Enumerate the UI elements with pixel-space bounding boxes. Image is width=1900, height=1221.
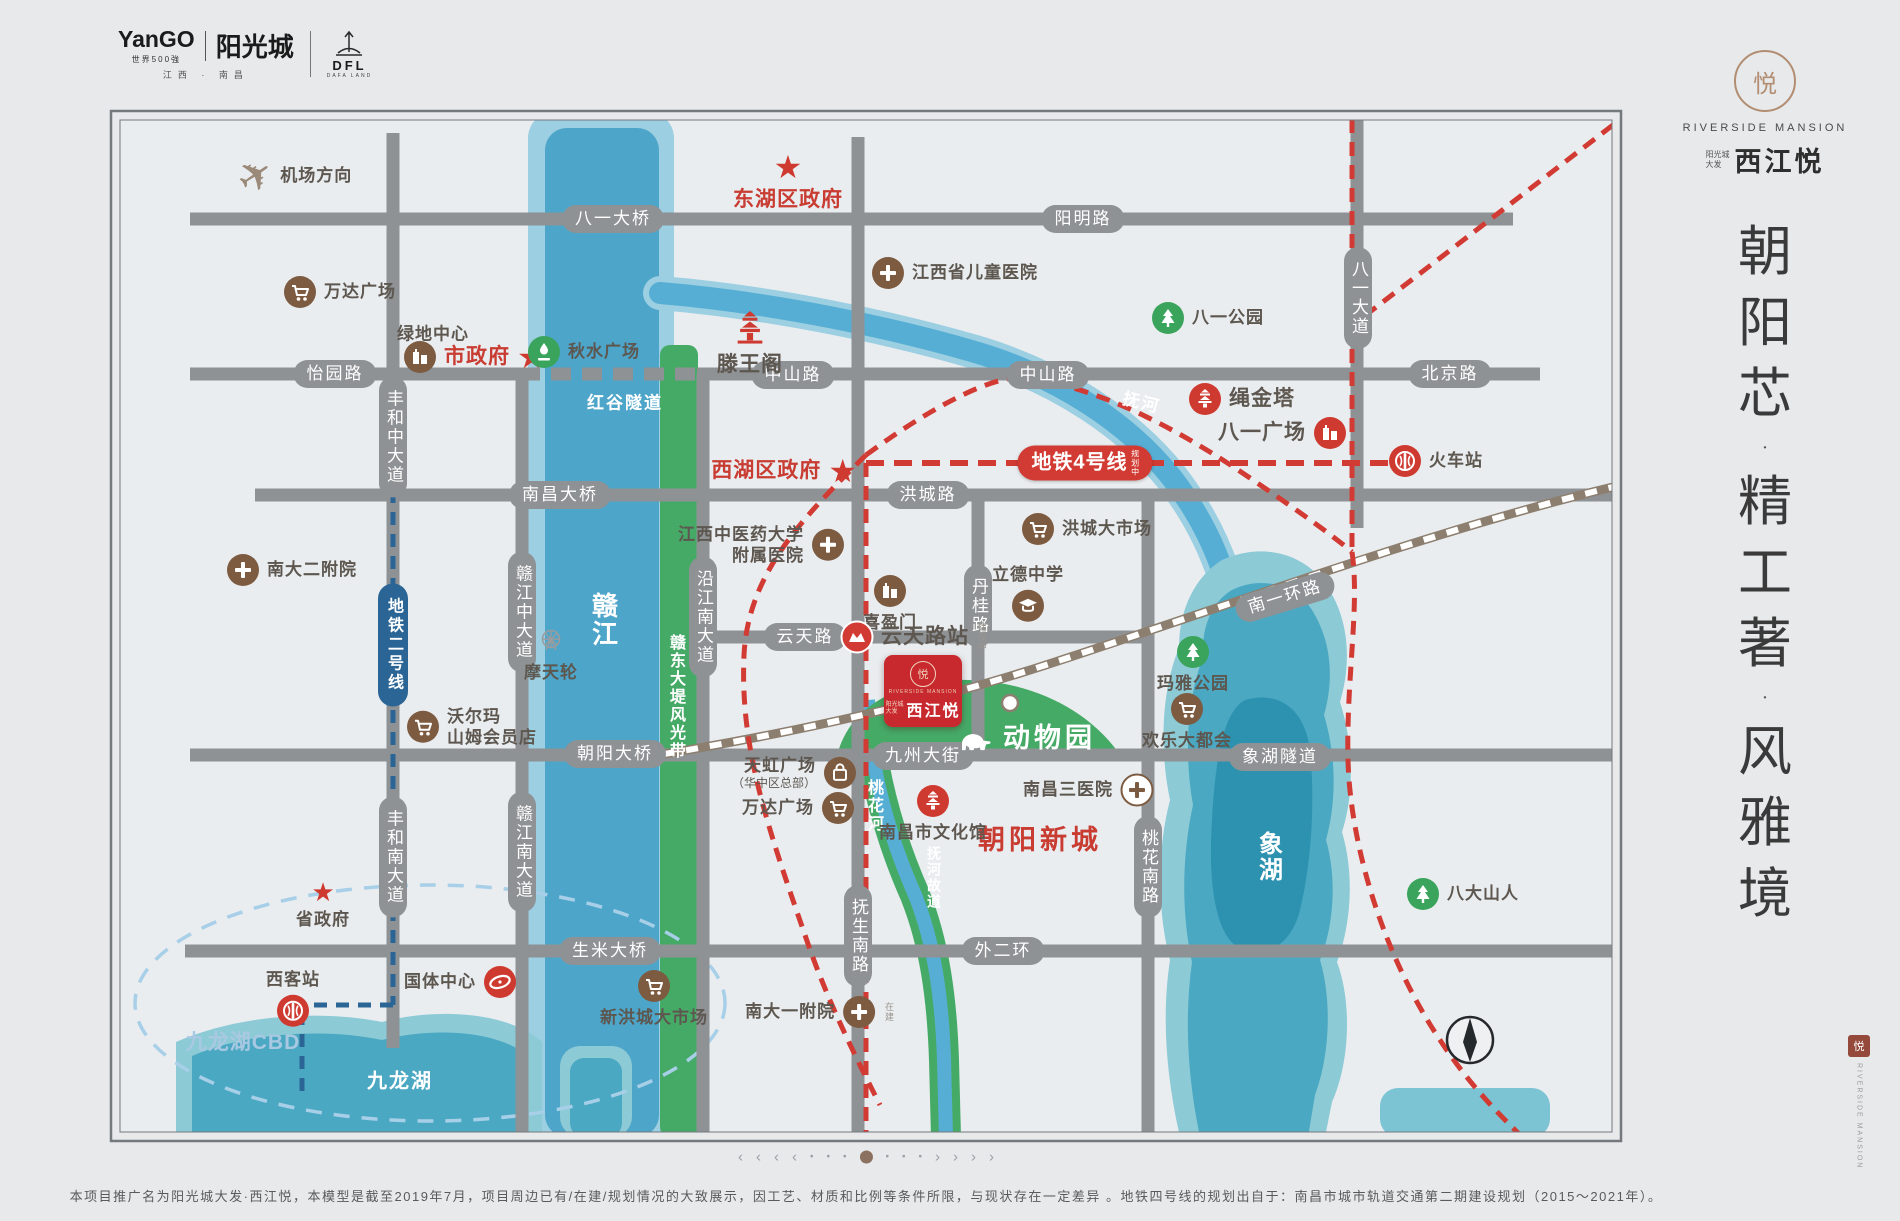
water-label: 红谷隧道 [587,389,663,414]
region-label: 江西 · 南昌 [163,68,249,81]
cart-icon [283,275,317,309]
jiangxi-children-hospital: 江西省儿童医院 [871,256,1038,290]
zhongyiyao-affiliated-hospital-label: 江西中医药大学 [678,524,804,545]
building-icon [403,340,437,374]
rainbow-plaza-label: 天虹广场 [732,755,816,776]
yuntian-road-station: 云天路站建设中 [840,620,986,654]
airport-direction: ✈机场方向 [238,155,352,197]
wanda-plaza-south: 万达广场 [742,791,855,825]
road-label: 丰和南大道 [379,797,407,918]
seal-english: RIVERSIDE MANSION [1856,1063,1863,1169]
cross-icon [842,995,876,1029]
maya-park: 玛雅公园 [1157,635,1229,694]
nanda-1st-hospital-label: 南大一附院 [745,1001,835,1022]
west-railway-station-label: 西客站 [266,969,320,990]
slogan-character: · [1762,438,1769,458]
developer-logos: YanGO 世界500強 阳光城 江西 · 南昌 DFL DAFA LAND [118,26,372,81]
slogan-character: 朝 [1738,225,1792,279]
pagination-dot[interactable]: • [843,1152,847,1162]
walmart-sams-club-sublabel: 山姆会员店 [447,727,537,748]
slogan-character: 阳 [1738,296,1792,350]
slogan-character: 著 [1738,617,1792,671]
qiushui-square-label: 秋水广场 [568,341,640,362]
road-label: 赣江南大道 [508,792,536,913]
brand-english-name: RIVERSIDE MANSION [1683,122,1848,134]
badashanren: 八大山人 [1406,877,1519,911]
road-label: 云天路 [764,623,847,651]
brand-prefix: 阳光城大发 [1706,150,1730,169]
logo-divider [310,31,311,77]
zoo-label: 动物园 [1003,722,1096,756]
road-label: 朝阳大桥 [564,740,666,768]
road-label: 北京路 [1409,360,1492,388]
pagoda-icon [916,784,950,818]
wanda-plaza-south-label: 万达广场 [742,797,814,818]
pagination-current-dot[interactable] [860,1151,873,1164]
star-icon: ★ [828,455,857,487]
grad-icon [1011,589,1045,623]
cart-icon [1021,512,1055,546]
tengwang-pavilion-label: 滕王阁 [717,352,783,378]
pagination-dot[interactable]: • [902,1152,906,1162]
slogan-character: 精 [1738,475,1792,529]
road-label: 洪城路 [887,481,970,509]
qiushui-square: 秋水广场 [527,335,640,369]
yango-subtitle: 世界500強 [132,54,181,65]
project-logo-icon: 悦 [910,661,936,687]
project-name: 西江悦 [907,697,961,721]
railway-marker [1002,695,1018,711]
project-prefix: 阳光城大发 [885,702,903,716]
badashanren-label: 八大山人 [1447,883,1519,904]
pagination-arrow[interactable]: ‹ [774,1150,779,1165]
yuntian-road-station-label: 云天路站 [881,624,969,650]
vertical-slogan: 朝阳芯·精工著·风雅境 [1738,225,1792,921]
nanda-1st-hospital-status: 在建 [883,1002,893,1022]
bayi-park: 八一公园 [1151,301,1264,335]
slogan-character: 芯 [1738,367,1792,421]
road-label: 阳明路 [1042,205,1125,233]
nanda-2nd-hospital-label: 南大二附院 [267,559,357,580]
guoti-center: 国体中心 [404,965,517,999]
water-label: 抚河故道 [924,846,944,910]
chaoyang-new-town-label: 朝阳新城 [978,824,1102,858]
nanchang-culture-center-label: 南昌市文化馆 [879,822,987,843]
happy-metropolis-label: 欢乐大都会 [1142,730,1232,751]
project-marker: 悦 RIVERSIDE MANSION 阳光城大发 西江悦 [884,655,962,727]
brand-panel: 悦 RIVERSIDE MANSION 阳光城大发 西江悦 朝阳芯·精工著·风雅… [1630,0,1900,1221]
metro-icon [840,620,874,654]
yuntian-road-station-status: 建设中 [976,622,986,652]
new-hongcheng-market: 新洪城大市场 [600,969,708,1028]
water-label: 赣东大堤风光带 [663,634,687,760]
nanchang-3rd-hospital-label: 南昌三医院 [1023,779,1113,800]
cross-icon [871,256,905,290]
nanda-2nd-hospital: 南大二附院 [226,553,357,587]
city-government: 市政府★ [403,340,546,374]
bayi-square: 八一广场 [1218,416,1347,450]
road-label: 南昌大桥 [509,481,611,509]
road-label: 象湖隧道 [1229,743,1331,771]
road-label: 丰和中大道 [379,377,407,498]
brand-chinese-name: 西江悦 [1735,140,1825,179]
metro-line-badge: 地铁二号线 [378,584,408,707]
pagoda-icon [1188,382,1222,416]
yango-logo: YanGO 世界500強 阳光城 江西 · 南昌 [118,26,294,81]
guoti-center-label: 国体中心 [404,971,476,992]
pagination-dot[interactable]: • [919,1152,923,1162]
ferris-wheel: 摩天轮 [524,624,578,683]
rainbow-plaza: 天虹广场（华中区总部） [732,755,857,791]
pagination-dot[interactable]: • [810,1152,814,1162]
pagination-arrow[interactable]: ‹ [792,1150,797,1165]
chaoyang-new-town: 朝阳新城 [978,824,1102,858]
road-label: 外二环 [962,937,1045,965]
shengjin-tower-label: 绳金塔 [1229,386,1295,412]
bayi-park-label: 八一公园 [1192,307,1264,328]
southeast-water [1380,1088,1550,1137]
pagination-dot[interactable]: • [886,1152,890,1162]
star-icon: ★ [774,151,803,183]
new-hongcheng-market-label: 新洪城大市场 [600,1007,708,1028]
tree-icon [1176,635,1210,669]
lide-middle-school-label: 立德中学 [992,564,1064,585]
compass-icon [1447,1017,1493,1063]
road-label: 中山路 [1007,361,1090,389]
cart-icon [637,969,671,1003]
slogan-character: 境 [1738,867,1792,921]
rail-icon [1388,444,1422,478]
water-label: 象湖 [1251,831,1286,883]
dfl-subtitle: DAFA LAND [327,73,373,79]
road-label: 八一大道 [1344,247,1372,349]
nanchang-3rd-hospital: 南昌三医院 [1023,773,1154,807]
brand-mark-icon: 悦 [1734,50,1796,112]
tree-icon [1151,301,1185,335]
hongcheng-market-label: 洪城大市场 [1062,518,1152,539]
tree-icon [1406,877,1440,911]
xihu-district-government-label: 西湖区政府 [711,458,821,484]
metro-line-badge: 地铁4号线规划中 [1017,446,1152,481]
jiangxi-children-hospital-label: 江西省儿童医院 [912,262,1038,283]
yango-wordmark: YanGO [118,26,195,53]
jiulonghu-east [570,1058,622,1137]
airport-direction-label: 机场方向 [280,165,352,186]
nanda-1st-hospital: 南大一附院在建 [745,995,893,1029]
bag-icon [823,756,857,790]
provincial-government: ★省政府 [296,879,350,930]
donghu-district-government: ★东湖区政府 [733,151,843,213]
pagination-arrow[interactable]: ‹ [756,1150,761,1165]
pagination-arrow[interactable]: › [971,1150,976,1165]
cart-icon [821,791,855,825]
donghu-district-government-label: 东湖区政府 [733,187,843,213]
disclaimer-text: 本项目推广名为阳光城大发·西江悦，本模型是截至2019年7月，项目周边已有/在建… [66,1186,1666,1205]
brand-name: 阳光城大发 西江悦 [1706,140,1825,179]
road-label: 怡园路 [294,360,377,388]
stadium-icon [483,965,517,999]
slogan-character: 风 [1738,725,1792,779]
road-label: 生米大桥 [559,937,661,965]
rainbow-plaza-sublabel: （华中区总部） [732,776,816,791]
building-red-icon [1313,416,1347,450]
star-icon: ★ [311,879,334,905]
zhongyiyao-affiliated-hospital: 江西中医药大学附属医院 [678,524,845,567]
pagoda-plain-icon [729,306,771,348]
lide-middle-school: 立德中学 [992,564,1064,623]
pagination-arrow[interactable]: ‹ [738,1150,743,1165]
walmart-sams-club-label: 沃尔玛 [447,706,537,727]
dfl-wordmark: DFL [332,58,366,73]
water-label: 九龙湖 [367,1065,433,1094]
pagination-dots: ‹‹‹‹••••••›››› [738,1150,994,1165]
pagination-arrow[interactable]: › [935,1150,940,1165]
water-label: 赣江 [586,592,623,648]
fountain-icon [527,335,561,369]
shengjin-tower: 绳金塔 [1188,382,1295,416]
road-label: 桃花南路 [1134,816,1162,918]
dfl-logo: DFL DAFA LAND [327,29,373,79]
brand-seal: 悦 RIVERSIDE MANSION [1848,1035,1870,1169]
zoo: 动物园 [956,722,1096,756]
pagination-arrow[interactable]: › [989,1150,994,1165]
tengwang-pavilion: 滕王阁 [717,306,783,378]
slogan-character: 雅 [1738,796,1792,850]
yango-chinese-logo: 阳光城 [216,27,294,64]
road-label: 八一大桥 [562,205,664,233]
wanda-plaza-north-label: 万达广场 [324,281,396,302]
hongcheng-market: 洪城大市场 [1021,512,1152,546]
brand-mark-character: 悦 [1753,64,1777,99]
logo-divider [205,31,206,61]
cross-icon [811,528,845,562]
west-railway-station: 西客站 [266,969,320,1028]
railway-station: 火车站 [1388,444,1483,478]
pagination-arrow[interactable]: › [953,1150,958,1165]
railway-station-label: 火车站 [1429,450,1483,471]
ferris-icon [534,624,568,658]
elephant-icon [956,724,996,754]
jiulonghu-cbd-label: 九龙湖CBD [186,1030,301,1056]
ferris-wheel-label: 摩天轮 [524,662,578,683]
building-icon [873,574,907,608]
cross-wb-icon [1120,773,1154,807]
dfl-tower-icon [334,29,364,57]
cart-icon [1170,692,1204,726]
city-government-label: 市政府 [444,344,510,370]
walmart-sams-club: 沃尔玛山姆会员店 [406,706,537,749]
cross-icon [226,553,260,587]
seal-icon: 悦 [1848,1035,1870,1057]
cart-icon [406,710,440,744]
wanda-plaza-north: 万达广场 [283,275,396,309]
plane-icon: ✈ [229,149,282,204]
slogan-character: 工 [1738,546,1792,600]
happy-metropolis: 欢乐大都会 [1142,692,1232,751]
nanchang-culture-center: 南昌市文化馆 [879,784,987,843]
poster: YanGO 世界500強 阳光城 江西 · 南昌 DFL DAFA LAND 悦… [0,0,1900,1221]
road-label: 沿江南大道 [689,557,717,678]
zhongyiyao-affiliated-hospital-sublabel: 附属医院 [678,545,804,566]
bayi-square-label: 八一广场 [1218,420,1306,446]
road-label: 抚生南路 [844,885,872,987]
project-english-name: RIVERSIDE MANSION [889,689,958,695]
pagination-dot[interactable]: • [826,1152,830,1162]
provincial-government-label: 省政府 [296,909,350,930]
slogan-character: · [1762,688,1769,708]
xihu-district-government: 西湖区政府★ [711,455,857,487]
rail-icon [276,994,310,1028]
jiulonghu-cbd: 九龙湖CBD [186,1030,301,1056]
